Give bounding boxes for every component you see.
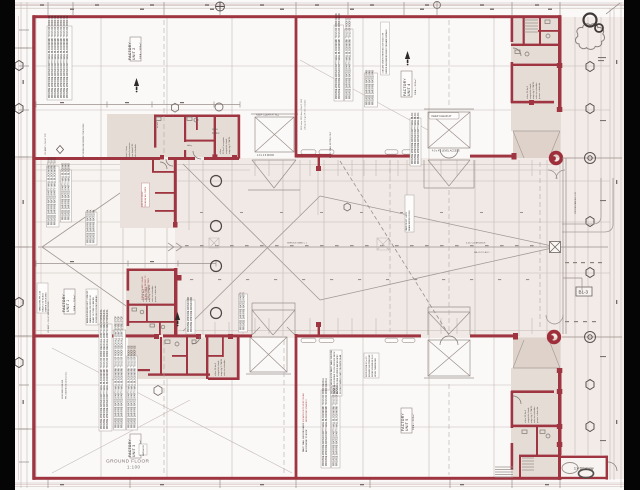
svg-text:PROVIDE 2HR FIRE RATED PARTY W: PROVIDE 2HR FIRE RATED PARTY WALL BLOCKW… — [63, 15, 66, 98]
svg-text:FFL 0.000 threshold level ac: FFL 0.000 threshold level acc — [64, 372, 67, 399]
svg-text:VISITOR PARKING 1:20: VISITOR PARKING 1:20 — [574, 191, 577, 214]
svg-text:UNIT 4: UNIT 4 — [407, 84, 411, 96]
svg-text:UNIT 5: UNIT 5 — [405, 419, 409, 431]
svg-text:AREA SCHEDULE UNIT 1 GEA 760: AREA SCHEDULE UNIT 1 GEA 760 — [86, 290, 89, 323]
svg-text:PROVIDE 2HR FIRE RATED PARTY W: PROVIDE 2HR FIRE RATED PARTY WALL BLOCKW… — [338, 13, 341, 99]
svg-text:power + data skt: power + data skt — [154, 285, 157, 302]
svg-text:wc acc: wc acc — [157, 122, 159, 128]
svg-text:PROVIDE 2HR FIRE RATED PAR: PROVIDE 2HR FIRE RATED PAR — [187, 297, 190, 332]
svg-text:PROVIDE 2HR FIRE RATED PARTY W: PROVIDE 2HR FIRE RATED PARTY WALL BLOC — [411, 112, 414, 164]
svg-text:PROVIDE 2HR FIRE RATED PARTY W: PROVIDE 2HR FIRE RATED PARTY WALL BLOCKW… — [333, 385, 336, 466]
svg-text:PROVIDE 2HR FIRE RATED PARTY W: PROVIDE 2HR FIRE RATED PARTY WALL BLOC — [417, 112, 420, 164]
svg-text:1:100: 1:100 — [127, 465, 141, 470]
svg-text:150 RWP + GULLY TYP: 150 RWP + GULLY TYP — [45, 133, 47, 155]
svg-text:PROVIDE 2HR FIRE RATED PARTY W: PROVIDE 2HR FIRE RATED PARTY WALL BLOCKW… — [48, 157, 51, 225]
svg-text:PARTY WALL SETTING OUT: PARTY WALL SETTING OUT — [329, 131, 332, 158]
svg-text:CLEAR AT ALL TIMES: CLEAR AT ALL TIMES — [144, 186, 147, 207]
svg-text:PROVIDE 2HR FIRE RATED PARTY W: PROVIDE 2HR FIRE RATED PARTY WALL BLOCKW… — [51, 15, 54, 98]
svg-text:office: office — [220, 148, 222, 154]
svg-text:carpet tile finish: carpet tile finish — [527, 407, 530, 423]
svg-text:WAREHOUSE 680 OFFICE 48: WAREHOUSE 680 OFFICE 48 — [89, 295, 92, 323]
svg-text:PROVIDE 2HR FIRE RATED PARTY W: PROVIDE 2HR FIRE RATED PARTY WALL BLOCKW… — [48, 15, 51, 98]
svg-text:PROVIDE 2HR FIRE RATED PARTY W: PROVIDE 2HR FIRE RATED PARTY WALL BLOC — [414, 112, 417, 164]
svg-text:PROVIDE 2HR FIRE RATED PARTY W: PROVIDE 2HR FIRE RATED PARTY WALL BLOCKW… — [68, 163, 71, 220]
svg-text:1:4 Driveway: 1:4 Driveway — [574, 467, 594, 471]
svg-text:sealed concrete: sealed concrete — [128, 142, 131, 158]
svg-text:PROVIDE 2HR FIRE RATED PARTY W: PROVIDE 2HR FIRE RATED PARTY WALL BLOCKW… — [54, 15, 57, 98]
svg-text:PROVIDE 2HR FIRE RATED PARTY W: PROVIDE 2HR FIRE RATED PARTY WALL BLOCKW… — [65, 163, 68, 220]
svg-text:carpet tile finish: carpet tile finish — [145, 286, 148, 302]
svg-text:GEA = 760m²: GEA = 760m² — [73, 295, 76, 312]
svg-text:PROVIDE 2HR FIRE RATED PARTY W: PROVIDE 2HR FIRE RATED PARTY WALL BLOCKW… — [57, 15, 60, 98]
svg-text:susp clg 2.7 AFFL: susp clg 2.7 AFFL — [532, 81, 535, 99]
svg-text:REFER ENGINEERS DWG FOR BASE D: REFER ENGINEERS DWG FOR BASE DETAILS — [385, 29, 388, 74]
svg-text:FALLS TO ACO →: FALLS TO ACO → — [474, 251, 492, 254]
svg-text:PROVIDE 2HR FIRE RATED PARTY W: PROVIDE 2HR FIRE RATED PARTY WALL BLOCKW… — [54, 157, 57, 225]
svg-text:lobby: lobby — [187, 145, 192, 147]
svg-text:PROVIDE 2HR FIRE RATED PARTY W: PROVIDE 2HR FIRE RATED PARTY WALL BLOCKW… — [322, 378, 325, 466]
svg-text:FALLS 1:60 TO ACO: FALLS 1:60 TO ACO — [42, 293, 45, 312]
svg-text:refer to schedule: refer to schedule — [151, 285, 154, 302]
svg-text:office 30.6m2: office 30.6m2 — [527, 85, 529, 99]
svg-text:GEA = 695m²: GEA = 695m² — [412, 414, 415, 431]
svg-text:32.6m²: 32.6m² — [212, 132, 220, 135]
svg-text:carpet tile finish: carpet tile finish — [217, 360, 220, 376]
svg-text:PROVIDE 2HR FIRE RATED PARTY W: PROVIDE 2HR FIRE RATED PARTY WALL BLOCKW… — [349, 18, 352, 99]
svg-text:refer schedule: refer schedule — [134, 143, 137, 158]
svg-text:power + data skt: power + data skt — [538, 82, 541, 99]
svg-text:PROVIDE 2HR FIRE RATED PA: PROVIDE 2HR FIRE RATED PA — [90, 209, 93, 243]
svg-text:4.0 x 4.5 LEVEL ACCESS: 4.0 x 4.5 LEVEL ACCESS — [432, 150, 460, 153]
svg-text:PROVIDE 2HR FIRE RATED PAR: PROVIDE 2HR FIRE RATED PAR — [366, 70, 369, 105]
svg-text:PROVIDE 2HR FIRE RATED PARTY W: PROVIDE 2HR FIRE RATED PARTY WALL BLOCKW… — [346, 18, 349, 99]
svg-text:office 24.8m2: office 24.8m2 — [143, 288, 145, 302]
svg-text:PROVIDE 2HR FIRE RATED PAR: PROVIDE 2HR FIRE RATED PAR — [372, 70, 375, 105]
svg-text:office 30.6m2: office 30.6m2 — [525, 409, 527, 423]
svg-text:SPECIFICATION NOTE PARTY WALL: SPECIFICATION NOTE PARTY WALL 2HR FIRE — [330, 350, 333, 394]
svg-text:susp clg 2.7 AFFL: susp clg 2.7 AFFL — [148, 284, 151, 302]
svg-text:PROVIDE 2HR FIRE RATED PARTY W: PROVIDE 2HR FIRE RATED PARTY WALL BLOCKW… — [103, 308, 106, 429]
svg-text:PROVIDE 2HR FIRE RATED PA: PROVIDE 2HR FIRE RATED PA — [87, 209, 90, 243]
svg-text:DRAIN REFER CIVILS: DRAIN REFER CIVILS — [408, 210, 411, 231]
svg-text:PROVIDE 2HR FIRE RATED PARTY W: PROVIDE 2HR FIRE RATED PARTY WALL BLOCKW… — [115, 316, 118, 428]
svg-text:refer to schedule: refer to schedule — [533, 406, 536, 423]
svg-text:YARD LEVEL FFL 0.00: YARD LEVEL FFL 0.00 — [39, 290, 42, 311]
svg-text:PROVIDE 2HR FIRE RATED PARTY: PROVIDE 2HR FIRE RATED PARTY — [240, 292, 243, 330]
svg-text:PC KERB LINE REFER CIVILS DWG: PC KERB LINE REFER CIVILS DWG — [83, 123, 85, 157]
svg-text:LEVEL THRESHOLD: LEVEL THRESHOLD — [375, 357, 377, 377]
svg-text:DOOR SCHEDULE D-12: DOOR SCHEDULE D-12 — [372, 354, 374, 377]
svg-text:refer to schedule: refer to schedule — [223, 359, 226, 376]
svg-text:SCHEDULE FOR NET AREAS: SCHEDULE FOR NET AREAS — [95, 295, 98, 323]
svg-text:PROVIDE 2HR FIRE RATED PARTY W: PROVIDE 2HR FIRE RATED PARTY WALL BLOCKW… — [51, 157, 54, 225]
svg-text:SERVICE YARD C L: SERVICE YARD C L — [287, 242, 308, 245]
svg-text:FIRE EXIT KEEP: FIRE EXIT KEEP — [142, 191, 144, 207]
svg-text:floor finish FFL: floor finish FFL — [131, 143, 134, 158]
svg-text:PLANT 18 CORE 14 REFER: PLANT 18 CORE 14 REFER — [92, 297, 95, 323]
svg-text:UNIT 3: UNIT 3 — [132, 445, 136, 457]
svg-text:PROVIDE 2HR FIRE RATED PARTY W: PROVIDE 2HR FIRE RATED PARTY WALL BLOCKW… — [128, 345, 131, 428]
svg-text:PROVIDE 2HR FIRE RATED PA: PROVIDE 2HR FIRE RATED PA — [93, 209, 96, 243]
svg-text:PROVIDE 2HR FIRE RATED PARTY W: PROVIDE 2HR FIRE RATED PARTY WALL BLOCKW… — [335, 13, 338, 99]
svg-text:carpet tile finish: carpet tile finish — [529, 83, 532, 99]
svg-text:4.0 x 4.5 DOOR: 4.0 x 4.5 DOOR — [257, 154, 274, 157]
svg-text:PROVIDE 2HR FIRE RATED PARTY W: PROVIDE 2HR FIRE RATED PARTY WALL BLOCKW… — [66, 15, 69, 98]
svg-text:B1-3: B1-3 — [579, 290, 589, 295]
svg-text:PROVIDE 2HR FIRE RATED PARTY W: PROVIDE 2HR FIRE RATED PARTY WALL BLOCKW… — [106, 308, 109, 429]
svg-text:susp clg 2.7 AFFL: susp clg 2.7 AFFL — [530, 405, 533, 423]
svg-text:YARD GULLY + ACO: YARD GULLY + ACO — [405, 212, 408, 231]
svg-text:ESCAPE ROUTE KEEP CLEAR: ESCAPE ROUTE KEEP CLEAR — [302, 393, 305, 422]
svg-text:22.6m2 reception: 22.6m2 reception — [222, 136, 225, 154]
svg-text:UNIT 1: UNIT 1 — [66, 300, 70, 312]
svg-text:BLOCKWORK TO ROOF: BLOCKWORK TO ROOF — [306, 429, 308, 452]
svg-text:PROVIDE 2HR FIRE RATED PAR: PROVIDE 2HR FIRE RATED PAR — [369, 70, 372, 105]
svg-text:setting out to grid F refer: setting out to grid F refer schedule — [303, 99, 306, 130]
svg-text:GEA = 580m²: GEA = 580m² — [139, 43, 142, 60]
svg-text:UNIT 2: UNIT 2 — [132, 48, 136, 60]
svg-text:PROVIDE 2HR FIRE RATED PARTY W: PROVIDE 2HR FIRE RATED PARTY WALL BLOCKW… — [325, 378, 328, 466]
svg-text:2400 3600 1200: 2400 3600 1200 850 — [62, 379, 64, 399]
svg-text:PROVIDE 2HR FIRE RATED PARTY W: PROVIDE 2HR FIRE RATED PARTY WALL BLOCKW… — [134, 345, 137, 428]
svg-text:ROLLER SHUTTER REF: ROLLER SHUTTER REF — [369, 354, 371, 377]
svg-text:PROVIDE 2HR FIRE RATED PARTY: PROVIDE 2HR FIRE RATED PARTY — [243, 292, 246, 330]
svg-text:DWG A-102: DWG A-102 — [142, 444, 145, 456]
svg-text:REFER FIRE STRATEGY: REFER FIRE STRATEGY — [305, 398, 308, 422]
svg-text:susp clg 2.7 AFFL: susp clg 2.7 AFFL — [228, 136, 231, 154]
svg-text:PROVIDE 2HR FIRE RATED PAR: PROVIDE 2HR FIRE RATED PAR — [190, 297, 193, 332]
svg-text:susp clg 2.7 AFFL: susp clg 2.7 AFFL — [220, 358, 223, 376]
svg-text:refer to schedule: refer to schedule — [535, 82, 538, 99]
svg-text:office 26.4m2: office 26.4m2 — [215, 362, 217, 376]
svg-text:PARTY WALL 2HR FIRE RATED: PARTY WALL 2HR FIRE RATED — [302, 422, 305, 452]
svg-text:PROVIDE 2HR FIRE RATED PARTY W: PROVIDE 2HR FIRE RATED PARTY WALL BLOCKW… — [118, 316, 121, 428]
svg-text:PROVIDE 2HR FIRE RATED PARTY W: PROVIDE 2HR FIRE RATED PARTY WALL BLOCKW… — [121, 316, 124, 428]
svg-text:PROVIDE 2HR FIRE RATED PARTY W: PROVIDE 2HR FIRE RATED PARTY WALL BLOCKW… — [336, 385, 339, 466]
svg-text:PROVIDE 2HR FIRE RATED PARTY W: PROVIDE 2HR FIRE RATED PARTY WALL BLOCKW… — [131, 345, 134, 428]
svg-text:office: office — [212, 128, 218, 131]
svg-text:PROVIDE 2HR FIRE RATED PARTY W: PROVIDE 2HR FIRE RATED PARTY WALL BLOCKW… — [62, 163, 65, 220]
svg-text:COLUMN GRID F2 SETTING OUT 640: COLUMN GRID F2 SETTING OUT 6400 CTS — [383, 32, 385, 73]
svg-text:power + data skt: power + data skt — [536, 406, 539, 423]
svg-text:PROVIDE 2HR FIRE RATED PARTY W: PROVIDE 2HR FIRE RATED PARTY WALL BLOCKW… — [100, 308, 103, 429]
svg-text:DOCK DOOR 4.0 x 4.5: DOCK DOOR 4.0 x 4.5 — [366, 356, 368, 377]
svg-text:store / clean: store / clean — [125, 145, 128, 158]
svg-text:150 RWP + GULLY REFER CIVILS: 150 RWP + GULLY REFER CIVILS — [48, 301, 50, 333]
svg-text:carpet tile finish: carpet tile finish — [225, 138, 228, 154]
svg-text:GEA = 695m²: GEA = 695m² — [414, 79, 417, 96]
svg-text:FLOOR POWER FLOAT CONCRETE SLA: FLOOR POWER FLOAT CONCRETE SLAB — [339, 354, 342, 394]
svg-text:6400 clear 3200 door 4.0: 6400 clear 3200 door 4.0x4.5 1200 — [301, 98, 303, 130]
svg-text:PROVIDE 2HR FIRE RATED PARTY W: PROVIDE 2HR FIRE RATED PARTY WALL BLOCKW… — [60, 15, 63, 98]
svg-text:6.0m CLEAR AISLE: 6.0m CLEAR AISLE — [466, 242, 486, 245]
svg-text:KEEP CLEAR AT: KEEP CLEAR AT — [432, 114, 452, 118]
